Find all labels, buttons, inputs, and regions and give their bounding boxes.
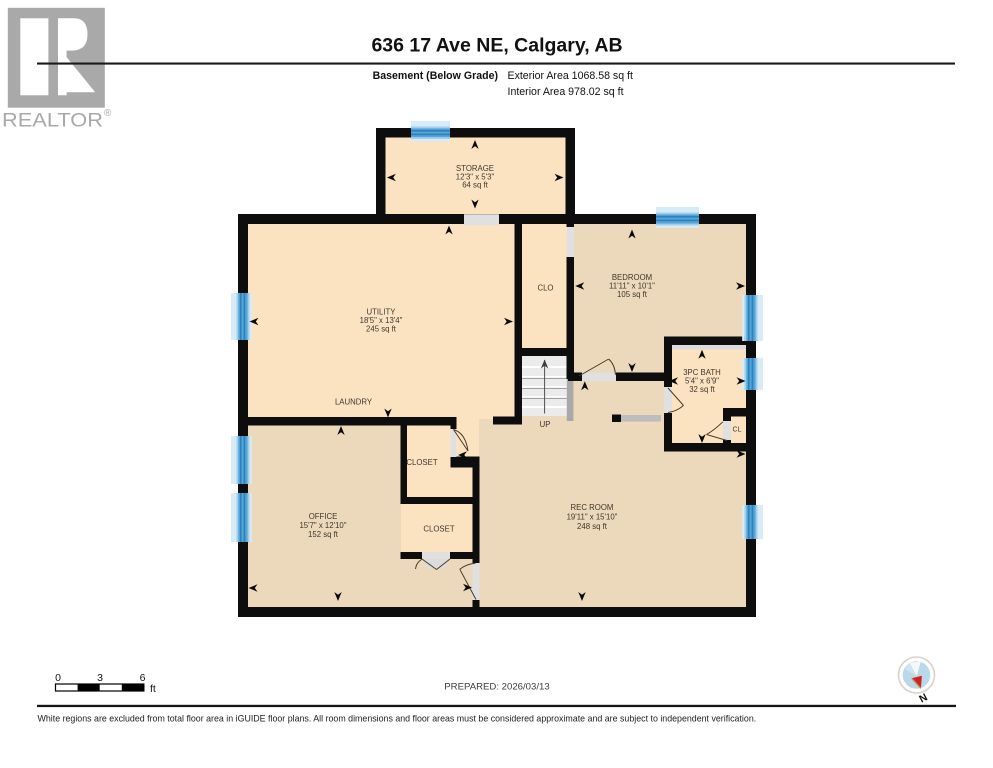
- svg-text:CLO: CLO: [537, 284, 553, 293]
- svg-text:REALTOR: REALTOR: [2, 110, 103, 132]
- svg-text:3: 3: [97, 672, 103, 684]
- svg-text:Interior Area 978.02 sq ft: Interior Area 978.02 sq ft: [508, 86, 624, 98]
- svg-text:152 sq ft: 152 sq ft: [308, 530, 339, 539]
- svg-text:White regions are excluded fro: White regions are excluded from total fl…: [38, 714, 757, 724]
- svg-text:64 sq ft: 64 sq ft: [462, 181, 488, 190]
- svg-text:OFFICE: OFFICE: [309, 512, 338, 521]
- svg-text:19'11" x 15'10": 19'11" x 15'10": [567, 513, 618, 522]
- svg-text:636 17 Ave NE, Calgary, AB: 636 17 Ave NE, Calgary, AB: [371, 35, 622, 57]
- svg-text:REC ROOM: REC ROOM: [571, 503, 614, 512]
- svg-text:CLOSET: CLOSET: [406, 458, 437, 467]
- svg-text:LAUNDRY: LAUNDRY: [335, 397, 373, 406]
- svg-text:CLOSET: CLOSET: [423, 525, 454, 534]
- svg-text:6: 6: [140, 672, 146, 684]
- svg-text:Exterior Area 1068.58 sq ft: Exterior Area 1068.58 sq ft: [508, 70, 633, 82]
- svg-text:CL: CL: [733, 426, 742, 433]
- svg-text:0: 0: [55, 672, 61, 684]
- svg-text:105 sq ft: 105 sq ft: [617, 290, 648, 299]
- svg-text:PREPARED: 2026/03/13: PREPARED: 2026/03/13: [444, 682, 549, 693]
- svg-text:Basement (Below Grade): Basement (Below Grade): [373, 70, 498, 82]
- svg-text:32 sq ft: 32 sq ft: [689, 385, 715, 394]
- svg-text:UP: UP: [540, 420, 551, 429]
- svg-text:245 sq ft: 245 sq ft: [366, 324, 397, 333]
- svg-text:ft: ft: [150, 683, 156, 695]
- svg-text:248 sq ft: 248 sq ft: [577, 522, 608, 531]
- svg-text:®: ®: [104, 108, 112, 119]
- svg-text:15'7" x 12'10": 15'7" x 12'10": [299, 521, 346, 530]
